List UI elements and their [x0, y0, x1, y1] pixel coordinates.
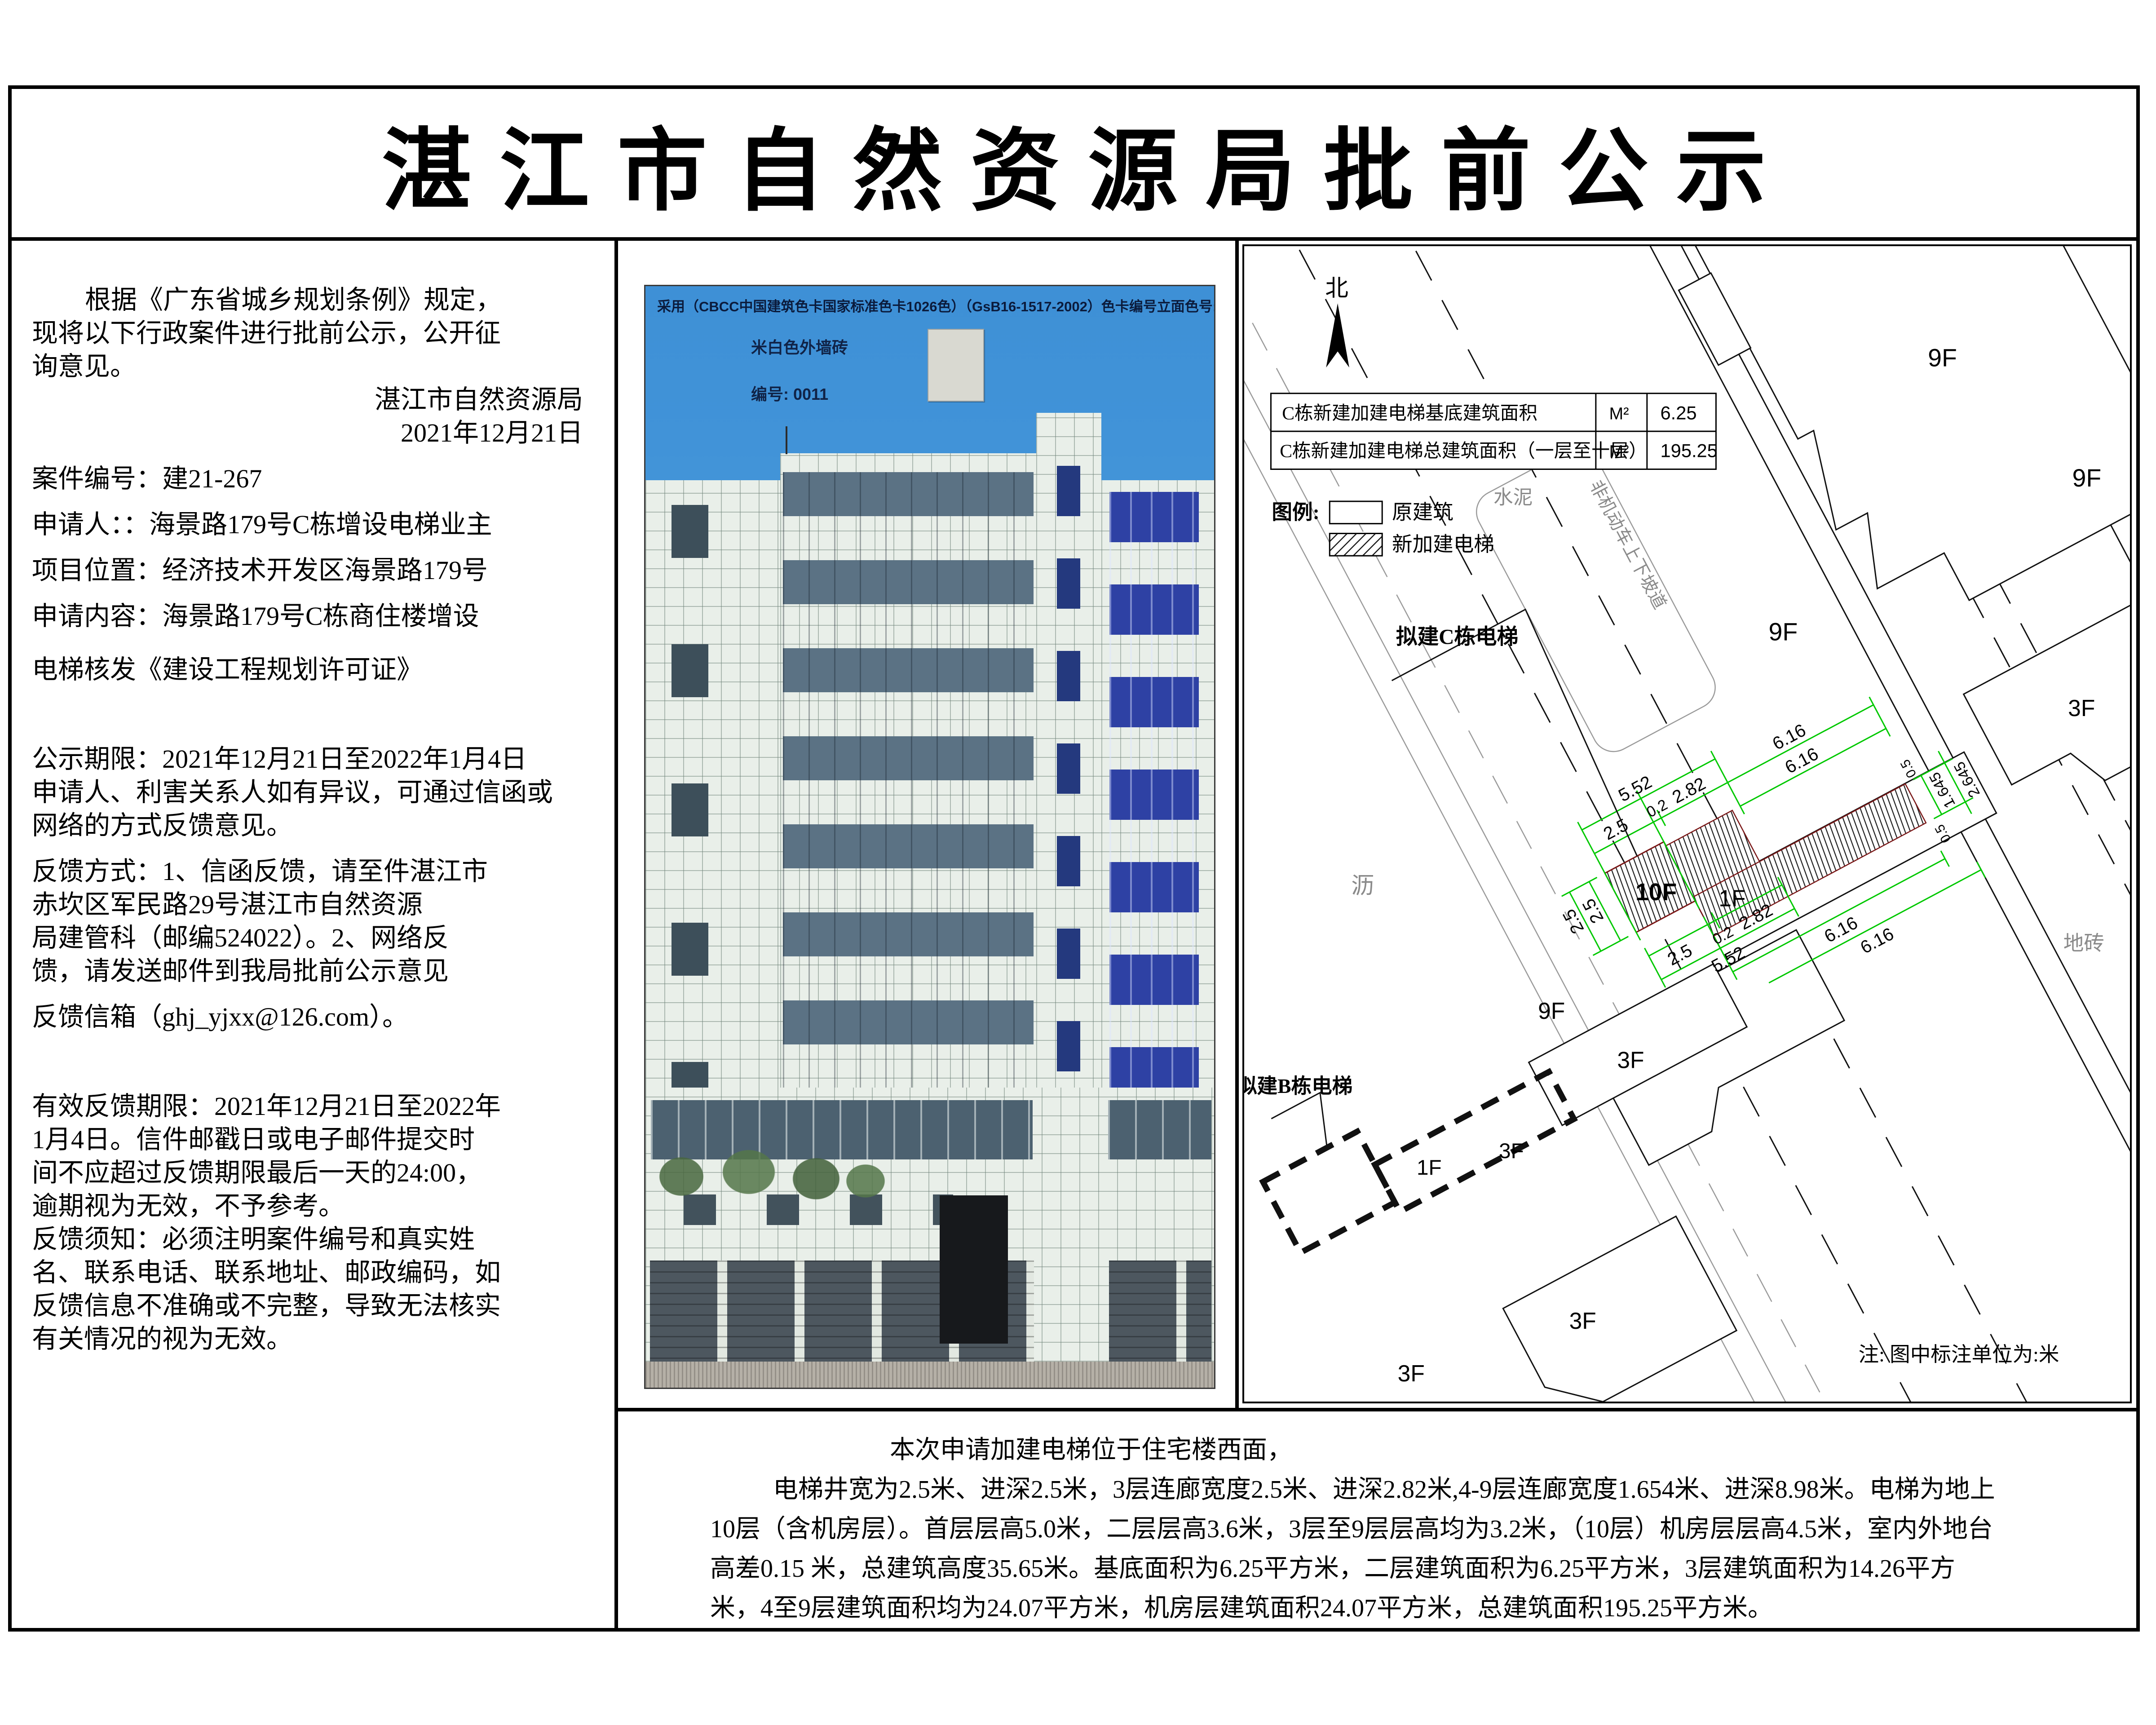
svg-text:6.16: 6.16 [1857, 924, 1897, 958]
blue-glass-bands [1109, 492, 1199, 1170]
notice-text-column: 根据《广东省城乡规划条例》规定， 现将以下行政案件进行批前公示，公开征 询意见。… [12, 241, 618, 1628]
legend-new-swatch [1330, 534, 1382, 556]
legend-title: 图例: [1272, 501, 1319, 524]
svg-text:1F: 1F [1417, 1156, 1442, 1180]
valid-feedback-period: 有效反馈期限：2021年12月21日至2022年 [32, 1090, 596, 1123]
legend-original-swatch [1330, 501, 1382, 524]
media-row: 采用（CBCC中国建筑色卡国家标准色卡1026色）（GsB16-1517-200… [618, 241, 2136, 1411]
notice-line: 局建管科（邮编524022）。2、网络反 [32, 921, 596, 955]
table-row-label: C栋新建加建电梯基底建筑面积 [1282, 402, 1537, 424]
north-label: 北 [1325, 276, 1348, 301]
pavement [645, 1362, 1214, 1388]
b-elevator-leader [1271, 1092, 1344, 1164]
feedback-method: 反馈方式：1、信函反馈，请至件湛江市 [32, 855, 596, 888]
feedback-notes: 反馈须知：必须注明案件编号和真实姓 [32, 1223, 596, 1256]
left-wing-windows [672, 505, 708, 1125]
notice-line: 馈，请发送邮件到我局批前公示意见 [32, 955, 596, 988]
north-arrow-icon [1326, 303, 1349, 367]
notice-line: 1月4日。信件邮戳日或电子邮件提交时 [32, 1123, 596, 1156]
notice-line: 有关情况的视为无效。 [32, 1322, 596, 1356]
notice-line: 根据《广东省城乡规划条例》规定， [32, 283, 596, 317]
svg-text:2.82: 2.82 [1669, 774, 1709, 807]
roof-antenna [786, 426, 787, 454]
area-table: C栋新建加建电梯基底建筑面积 M² 6.25 C栋新建加建电梯总建筑面积（一层至… [1271, 394, 1717, 469]
svg-text:10F: 10F [1635, 879, 1677, 906]
entrance-opening [940, 1195, 1008, 1344]
unit-note: 注: 图中标注单位为:米 [1859, 1343, 2059, 1366]
svg-text:3F: 3F [2068, 695, 2095, 721]
color-swatch [928, 329, 984, 402]
notice-frame: 湛江市自然资源局批前公示 根据《广东省城乡规划条例》规定， 现将以下行政案件进行… [8, 85, 2140, 1632]
c-elevator-label: 拟建C栋电梯 [1396, 625, 1518, 649]
building-rendering: 采用（CBCC中国建筑色卡国家标准色卡1026色）（GsB16-1517-200… [644, 285, 1215, 1389]
issue-date: 2021年12月21日 [32, 416, 596, 450]
svg-text:0.5: 0.5 [1898, 757, 1920, 780]
tower-window-slits [1057, 466, 1080, 1149]
swatch-name-label: 米白色外墙砖 [751, 335, 848, 358]
public-notice-page: { "page": { "title": "湛江市自然资源局批前公示" }, "… [0, 0, 2156, 1725]
notice-line: 电梯核发《建设工程规划许可证》 [32, 653, 596, 686]
notice-line: 询意见。 [32, 350, 596, 383]
b-elevator-dashed [1263, 1039, 1574, 1262]
asphalt-label: 沥 [1351, 873, 1374, 899]
svg-text:0.2: 0.2 [1644, 796, 1670, 821]
notice-line: 间不应超过反馈期限最后一天的24:00， [32, 1156, 596, 1190]
project-description: 本次申请加建电梯位于住宅楼西面， 电梯井宽为2.5米、进深2.5米，3层连廊宽度… [618, 1411, 2136, 1628]
tile-area-label: 地砖 [2063, 932, 2104, 955]
site-plan-drawing: 水泥 非机动车上下坡道 沥 地砖 [1244, 246, 2130, 1402]
publicity-period: 公示期限：2021年12月21日至2022年1月4日 [32, 743, 596, 776]
case-number: 案件编号：建21-267 [32, 462, 596, 495]
title-row: 湛江市自然资源局批前公示 [12, 89, 2136, 241]
notice-line: 申请人、利害关系人如有异议，可通过信函或 [32, 776, 596, 809]
window-bands [783, 472, 1034, 1175]
ramp-label: 非机动车上下坡道 [1586, 477, 1670, 612]
svg-text:3F: 3F [1569, 1308, 1596, 1334]
table-row-value: 195.25 [1661, 440, 1718, 461]
north-indicator: 北 [1325, 276, 1349, 367]
legend: 图例: 原建筑 新加建电梯 [1272, 501, 1494, 556]
description-line: 本次申请加建电梯位于住宅楼西面， [710, 1430, 2105, 1470]
notice-line: 网络的方式反馈意见。 [32, 809, 596, 842]
cement-label: 水泥 [1493, 487, 1533, 509]
right-stack: 采用（CBCC中国建筑色卡国家标准色卡1026色）（GsB16-1517-200… [618, 241, 2136, 1628]
trees [645, 1123, 888, 1226]
feedback-email: 反馈信箱（ghj_yjxx@126.com）。 [32, 1000, 596, 1034]
project-location: 项目位置：经济技术开发区海景路179号 [32, 554, 596, 587]
page-title: 湛江市自然资源局批前公示 [354, 98, 1794, 228]
site-plan-box: 水泥 非机动车上下坡道 沥 地砖 [1242, 244, 2132, 1403]
svg-text:9F: 9F [2072, 464, 2102, 492]
legend-new-label: 新加建电梯 [1392, 533, 1494, 556]
site-plan-column: 水泥 非机动车上下坡道 沥 地砖 [1239, 241, 2136, 1408]
b-elevator-label: 拟建B栋电梯 [1244, 1075, 1352, 1097]
table-row-unit: M² [1609, 404, 1629, 423]
description-line: 10层（含机房层）。首层层高5.0米，二层层高3.6米，3层至9层层高均为3.2… [710, 1509, 2105, 1549]
description-line: 电梯井宽为2.5米、进深2.5米，3层连廊宽度2.5米、进深2.82米,4-9层… [710, 1470, 2105, 1509]
svg-text:2.5: 2.5 [1600, 815, 1631, 844]
applicant: 申请人：：海景路179号C栋增设电梯业主 [32, 508, 596, 541]
application-content: 申请内容：海景路179号C栋商住楼增设 [32, 600, 596, 633]
svg-text:3F: 3F [1398, 1360, 1425, 1386]
table-row-unit: M² [1609, 442, 1629, 461]
svg-text:9F: 9F [1768, 618, 1798, 646]
storefront-windows [1108, 1100, 1211, 1159]
color-card-note: 采用（CBCC中国建筑色卡国家标准色卡1026色）（GsB16-1517-200… [657, 295, 1205, 315]
issuer-name: 湛江市自然资源局 [32, 383, 596, 416]
svg-text:1F: 1F [1719, 885, 1745, 911]
content-row: 根据《广东省城乡规划条例》规定， 现将以下行政案件进行批前公示，公开征 询意见。… [12, 241, 2136, 1628]
svg-text:9F: 9F [1538, 998, 1565, 1024]
notice-line: 逾期视为无效，不予参考。 [32, 1190, 596, 1223]
building-photo-column: 采用（CBCC中国建筑色卡国家标准色卡1026色）（GsB16-1517-200… [618, 241, 1239, 1408]
svg-text:5.52: 5.52 [1615, 772, 1655, 805]
notice-line: 赤坎区军民路29号湛江市自然资源 [32, 888, 596, 921]
table-row-label: C栋新建加建电梯总建筑面积（一层至十层） [1280, 441, 1647, 462]
table-row-value: 6.25 [1661, 402, 1697, 423]
svg-text:9F: 9F [1928, 344, 1957, 372]
notice-line: 反馈信息不准确或不完整，导致无法核实 [32, 1289, 596, 1322]
description-line: 高差0.15 米，总建筑高度35.65米。基底面积为6.25平方米，二层建筑面积… [710, 1549, 2105, 1588]
notice-line: 名、联系电话、联系地址、邮政编码，如 [32, 1256, 596, 1289]
legend-original-label: 原建筑 [1392, 501, 1454, 524]
swatch-code-label: 编号: 0011 [751, 381, 828, 405]
description-line: 米，4至9层建筑面积均为24.07平方米，机房层建筑面积24.07平方米，总建筑… [710, 1588, 2105, 1628]
svg-text:3F: 3F [1499, 1139, 1524, 1163]
svg-text:3F: 3F [1617, 1047, 1644, 1073]
garage-doors [1109, 1261, 1211, 1362]
notice-line: 现将以下行政案件进行批前公示，公开征 [32, 317, 596, 350]
svg-text:6.16: 6.16 [1821, 913, 1861, 947]
